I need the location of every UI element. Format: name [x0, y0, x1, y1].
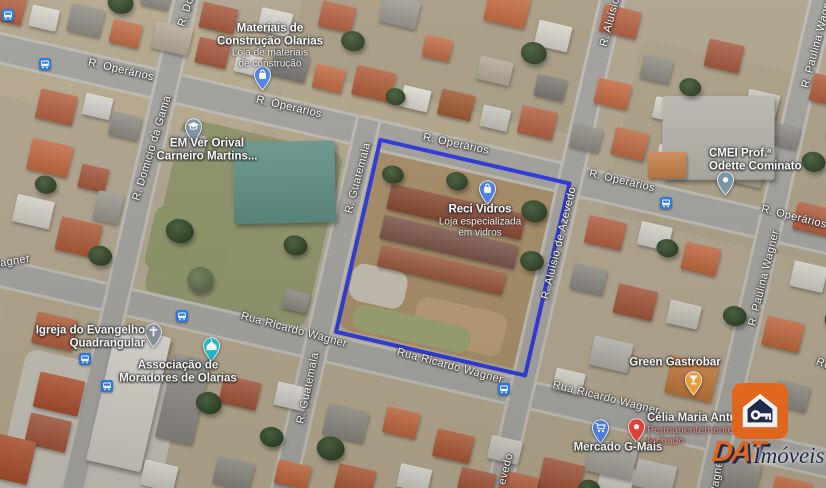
materiais-de-construcao-olarias-pin[interactable]: [253, 66, 272, 96]
street-label: evedo: [496, 452, 515, 486]
street-label: R. Guatemala: [343, 141, 373, 214]
poi-title: Associação de: [119, 359, 237, 372]
street-label: R. Do: [176, 0, 197, 28]
poi-subtitle: de construção: [217, 59, 323, 70]
street-label: R. Guatemala: [295, 351, 322, 425]
em-ver-orival-carneiro-martins-label[interactable]: EM Ver OrivalCarneiro Martins...: [157, 137, 258, 162]
poi-title: Reci Vidros: [439, 204, 521, 217]
street-label: Rua Ricardo Wagner: [814, 356, 826, 405]
materiais-de-construcao-olarias-label[interactable]: Materiais deConstrução OlariasLoja de ma…: [217, 22, 323, 69]
bus-stop-icon[interactable]: [39, 57, 51, 75]
logo-word-text: Imóveis: [753, 443, 825, 469]
green-gastrobar-label[interactable]: Green Gastrobar: [629, 357, 720, 370]
bus-stop-icon[interactable]: [176, 309, 188, 327]
poi-title: Igreja do Evangelho: [36, 324, 145, 337]
poi-title: Odette Cominato: [709, 160, 802, 173]
poi-subtitle: em vidros: [439, 227, 521, 238]
street-label: R. Paulina Wagner: [746, 229, 782, 328]
poi-subtitle: Loja especializada: [439, 216, 521, 227]
poi-title: EM Ver Orival: [157, 137, 258, 150]
poi-title: Green Gastrobar: [629, 357, 720, 370]
street-label: R. Operários: [760, 203, 826, 231]
cmei-profa-odette-cominato-label[interactable]: CMEI Prof.ªOdette Cominato: [709, 147, 802, 172]
poi-title: Materiais de: [217, 22, 323, 35]
map-overlay: R. OperáriosR. OperáriosR. OperáriosR. O…: [0, 0, 826, 488]
poi-title: CMEI Prof.ª: [709, 147, 802, 160]
bus-stop-icon[interactable]: [2, 8, 14, 26]
street-label: Wagner: [0, 253, 31, 272]
poi-title: Quadrangular: [36, 337, 145, 350]
bus-stop-icon[interactable]: [498, 382, 510, 400]
poi-title: Mercado G-Mais: [574, 442, 663, 455]
bus-stop-icon[interactable]: [101, 379, 113, 397]
street-label: Rua Ricardo Wagner: [551, 379, 660, 417]
street-label: R. Operários: [255, 94, 323, 121]
mercado-g-mais-label[interactable]: Mercado G-Mais: [574, 442, 663, 455]
bus-stop-icon[interactable]: [660, 196, 672, 214]
street-label: Rua Ricardo Wagner: [240, 310, 349, 350]
cmei-profa-odette-cominato-pin[interactable]: [716, 171, 735, 201]
street-label: R. Paulina Wagner: [799, 0, 826, 89]
dat-imoveis-logo: [732, 383, 788, 439]
street-label: R. Aluísio de Azevedo: [539, 186, 579, 301]
poi-title: Carneiro Martins...: [157, 150, 258, 163]
poi-subtitle: Loja de materiais: [217, 48, 323, 59]
igreja-do-evangelho-quadrangular-pin[interactable]: [144, 323, 163, 353]
satellite-map[interactable]: R. OperáriosR. OperáriosR. OperáriosR. O…: [0, 0, 826, 488]
street-label: R. Aluísio: [598, 0, 623, 48]
green-gastrobar-pin[interactable]: [684, 371, 703, 401]
street-label: R. Operários: [87, 57, 155, 84]
street-label: R. Operários: [422, 131, 490, 157]
poi-title: Moradores de Olarias: [119, 372, 237, 385]
bus-stop-icon[interactable]: [79, 352, 91, 370]
reci-vidros-label[interactable]: Reci VidrosLoja especializadaem vidros: [439, 204, 521, 239]
street-label: R. Operários: [588, 168, 656, 195]
poi-title: Construção Olarias: [217, 35, 323, 48]
igreja-do-evangelho-quadrangular-label[interactable]: Igreja do EvangelhoQuadrangular: [36, 324, 145, 349]
associacao-de-moradores-de-olarias-label[interactable]: Associação deMoradores de Olarias: [119, 359, 237, 384]
house-key-icon: [737, 388, 783, 434]
street-label: Rua Ricardo Wagner: [396, 346, 505, 386]
